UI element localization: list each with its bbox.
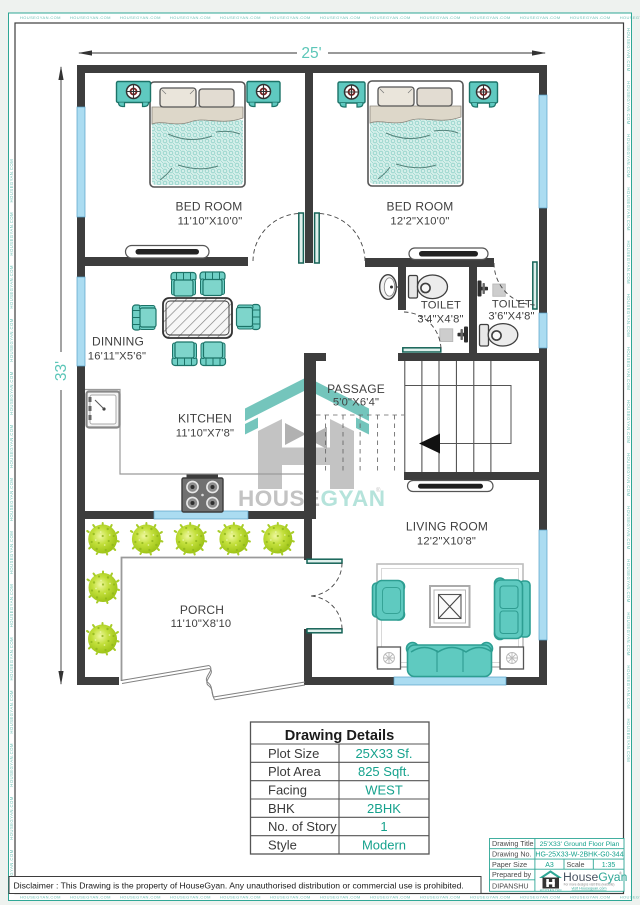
svg-text:2BHK: 2BHK <box>367 801 401 816</box>
svg-text:Facing: Facing <box>268 782 307 797</box>
svg-text:3'6"X4'8": 3'6"X4'8" <box>488 311 534 323</box>
svg-text:HOUSEGYAN.COM HOUSEGYAN.C: HOUSEGYAN.COM HOUSEGYAN.COM HOUSEGYAN.CO… <box>9 149 14 893</box>
svg-text:25'X33' Ground Floor Plan: 25'X33' Ground Floor Plan <box>540 841 620 848</box>
svg-text:DINNING: DINNING <box>92 335 144 349</box>
svg-text:25': 25' <box>301 45 321 62</box>
svg-text:TOILET: TOILET <box>492 299 532 311</box>
svg-text:PASSAGE: PASSAGE <box>327 382 385 396</box>
svg-text:TOILET: TOILET <box>421 300 461 312</box>
svg-text:Style: Style <box>268 837 297 852</box>
svg-text:Drawing Title: Drawing Title <box>492 839 534 848</box>
svg-text:HOUSEGYAN: HOUSEGYAN <box>540 888 562 892</box>
svg-text:Scale: Scale <box>567 860 585 869</box>
svg-text:HOUSEGYAN.COM HOUSEGYAN.C: HOUSEGYAN.COM HOUSEGYAN.COM HOUSEGYAN.CO… <box>626 28 631 772</box>
svg-text:Drawing No.: Drawing No. <box>492 850 532 859</box>
svg-text:HG-25X33-W-2BHK-G0-344: HG-25X33-W-2BHK-G0-344 <box>535 852 623 859</box>
svg-text:825 Sqft.: 825 Sqft. <box>358 764 410 779</box>
svg-text:1: 1 <box>380 819 387 834</box>
svg-text:visit Housegyan.com: visit Housegyan.com <box>571 886 606 890</box>
svg-text:12'2"X10'8": 12'2"X10'8" <box>417 536 476 548</box>
svg-text:LIVING ROOM: LIVING ROOM <box>406 520 488 534</box>
svg-text:®: ® <box>619 871 622 876</box>
svg-text:HOUSEGYAN.COM HOUSEGYAN.C: HOUSEGYAN.COM HOUSEGYAN.COM HOUSEGYAN.CO… <box>20 15 640 20</box>
svg-text:BHK: BHK <box>268 801 295 816</box>
svg-text:12'2"X10'0": 12'2"X10'0" <box>390 216 449 228</box>
svg-text:KITCHEN: KITCHEN <box>178 412 232 426</box>
svg-text:11'10"X8'10: 11'10"X8'10 <box>171 618 232 630</box>
svg-text:16'11"X5'6": 16'11"X5'6" <box>88 351 146 363</box>
svg-text:®: ® <box>376 487 381 494</box>
svg-text:Drawing Details: Drawing Details <box>285 728 394 744</box>
svg-text:DIPANSHU: DIPANSHU <box>492 882 529 891</box>
svg-text:A3: A3 <box>545 862 554 869</box>
svg-text:Modern: Modern <box>362 837 406 852</box>
svg-text:Prepared by: Prepared by <box>492 870 532 879</box>
svg-text:5'0"X6'4": 5'0"X6'4" <box>333 397 379 409</box>
svg-text:BED ROOM: BED ROOM <box>176 200 243 214</box>
svg-text:Disclaimer : This Drawing is t: Disclaimer : This Drawing is the propert… <box>14 880 464 890</box>
svg-text:PORCH: PORCH <box>180 603 224 617</box>
svg-text:Paper Size: Paper Size <box>492 860 527 869</box>
svg-text:Plot Area: Plot Area <box>268 764 322 779</box>
svg-text:3'4"X4'8": 3'4"X4'8" <box>417 314 463 326</box>
svg-text:No. of Story: No. of Story <box>268 819 337 834</box>
svg-text:1:35: 1:35 <box>602 862 616 869</box>
svg-text:33': 33' <box>53 361 70 381</box>
svg-text:HOUSEGYAN.COM HOUSEGYAN.C: HOUSEGYAN.COM HOUSEGYAN.COM HOUSEGYAN.CO… <box>20 894 640 899</box>
svg-text:WEST: WEST <box>365 782 403 797</box>
svg-text:11'10"X10'0": 11'10"X10'0" <box>178 216 243 228</box>
svg-text:25X33 Sf.: 25X33 Sf. <box>355 746 412 761</box>
svg-text:BED ROOM: BED ROOM <box>387 200 454 214</box>
svg-text:11'10"X7'8": 11'10"X7'8" <box>176 428 234 440</box>
svg-text:Plot Size: Plot Size <box>268 746 319 761</box>
